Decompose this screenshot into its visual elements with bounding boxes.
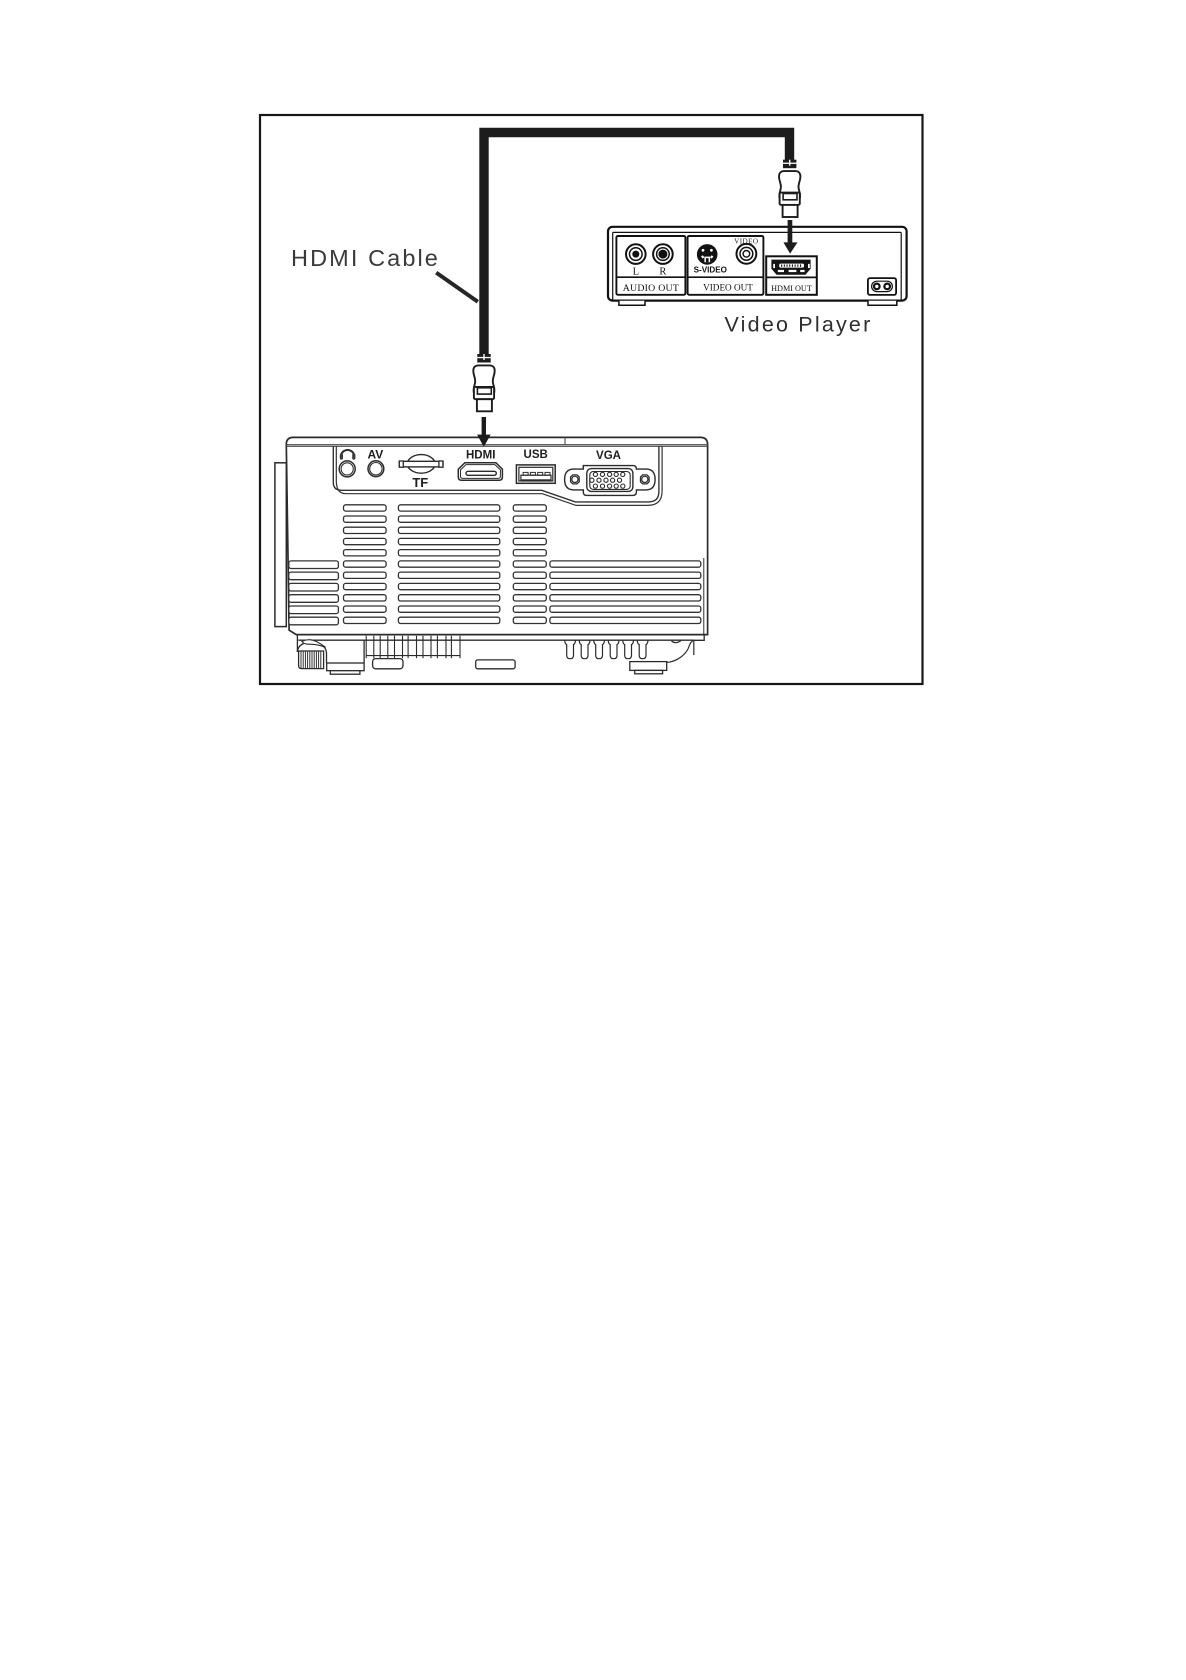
svg-text:HDMI Cable: HDMI Cable [291,245,440,271]
svg-text:VIDEO: VIDEO [734,238,758,246]
svg-text:Video Player: Video Player [725,313,873,337]
svg-text:VIDEO OUT: VIDEO OUT [703,282,753,292]
svg-text:HDMI OUT: HDMI OUT [771,284,812,293]
svg-text:USB: USB [524,449,548,461]
svg-text:HDMI: HDMI [466,450,495,462]
svg-text:AUDIO OUT: AUDIO OUT [623,283,679,294]
svg-text:R: R [659,266,666,277]
svg-text:L: L [633,266,639,277]
svg-text:TF: TF [412,475,428,490]
svg-text:VGA: VGA [596,450,621,462]
svg-text:AV: AV [368,448,384,462]
svg-text:S-VIDEO: S-VIDEO [694,265,727,274]
